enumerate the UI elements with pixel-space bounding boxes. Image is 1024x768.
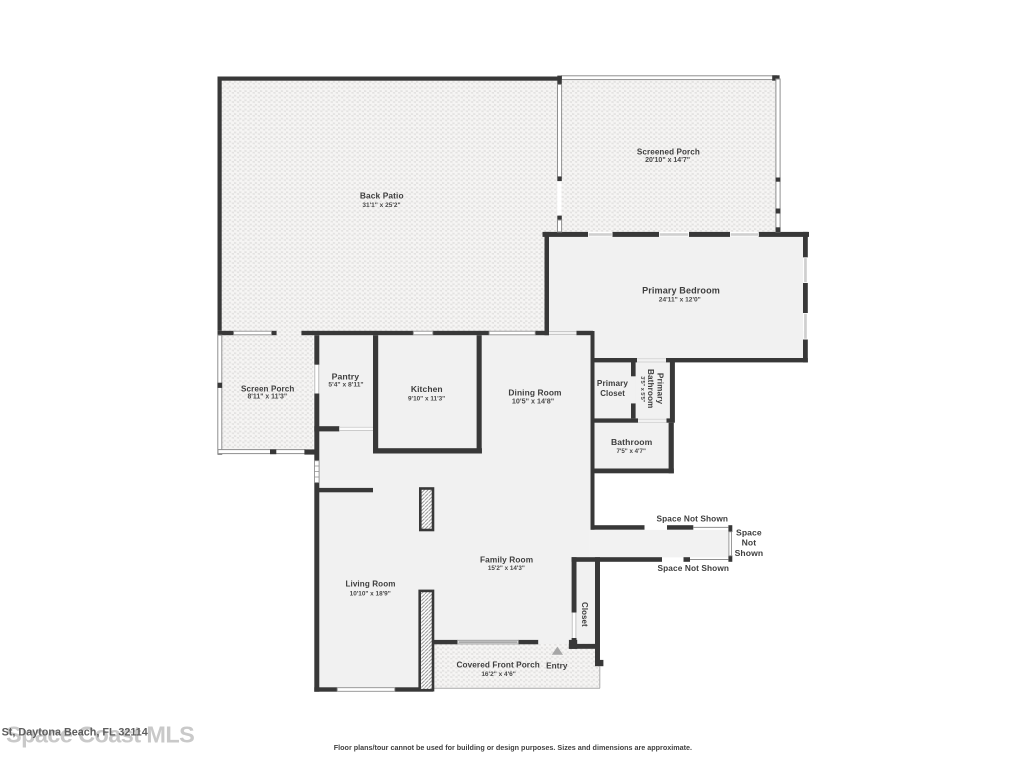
svg-text:Back Patio: Back Patio: [360, 190, 404, 200]
svg-text:8'11" x 11'3": 8'11" x 11'3": [247, 393, 287, 400]
svg-text:Family Room: Family Room: [480, 555, 533, 565]
svg-text:Screen Porch: Screen Porch: [241, 384, 294, 393]
svg-text:b St, Daytona Beach, FL 32114: b St, Daytona Beach, FL 32114: [0, 726, 148, 738]
svg-text:16'2" x 4'6": 16'2" x 4'6": [481, 671, 516, 678]
svg-text:Living Room: Living Room: [345, 580, 395, 589]
svg-text:Primary Bedroom: Primary Bedroom: [642, 286, 720, 296]
svg-text:Bathroom: Bathroom: [646, 369, 655, 408]
svg-text:Kitchen: Kitchen: [411, 384, 443, 394]
svg-text:7'5" x 4'7": 7'5" x 4'7": [616, 448, 646, 455]
svg-text:Shown: Shown: [735, 548, 764, 558]
svg-text:31'1" x 25'2": 31'1" x 25'2": [362, 202, 400, 209]
svg-text:15'2" x 14'3": 15'2" x 14'3": [488, 565, 525, 572]
svg-text:Closet: Closet: [580, 602, 589, 627]
svg-text:Primary: Primary: [597, 379, 629, 388]
svg-text:Covered Front Porch: Covered Front Porch: [457, 661, 540, 670]
svg-text:Closet: Closet: [600, 389, 625, 398]
svg-text:3'5" x 5'5": 3'5" x 5'5": [639, 376, 645, 403]
svg-text:Floor plans/tour cannot be use: Floor plans/tour cannot be used for buil…: [334, 743, 692, 752]
svg-text:Pantry: Pantry: [332, 371, 360, 381]
svg-text:20'10" x 14'7": 20'10" x 14'7": [645, 157, 690, 164]
svg-text:10'10" x 18'9": 10'10" x 18'9": [350, 590, 391, 597]
svg-text:Bathroom: Bathroom: [611, 437, 653, 447]
svg-text:Primary: Primary: [656, 373, 665, 405]
svg-text:24'11" x 12'0": 24'11" x 12'0": [659, 296, 701, 303]
svg-text:Space Not Shown: Space Not Shown: [658, 563, 730, 573]
svg-text:Entry: Entry: [546, 661, 568, 670]
svg-text:Screened Porch: Screened Porch: [637, 148, 700, 157]
svg-text:Space: Space: [736, 528, 762, 538]
svg-text:9'10" x 11'3": 9'10" x 11'3": [408, 395, 445, 402]
svg-text:10'5" x 14'8": 10'5" x 14'8": [512, 397, 554, 406]
svg-text:Not: Not: [742, 538, 757, 548]
svg-text:5'4" x 8'11": 5'4" x 8'11": [328, 382, 363, 389]
svg-text:Space Not Shown: Space Not Shown: [657, 514, 729, 524]
